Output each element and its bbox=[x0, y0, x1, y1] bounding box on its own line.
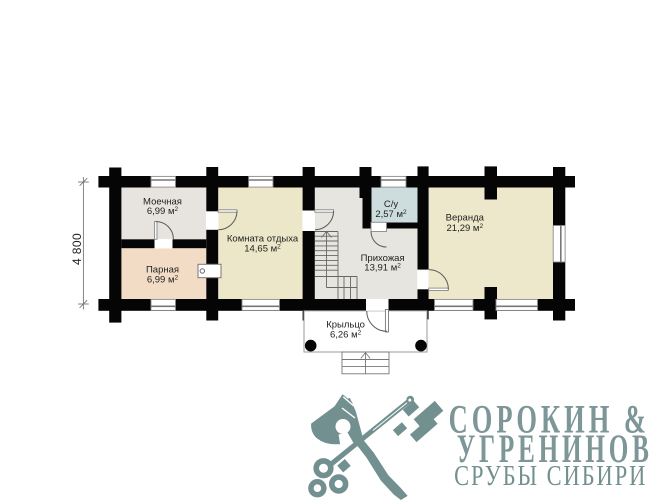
svg-text:4 800: 4 800 bbox=[70, 233, 84, 265]
svg-text:6,99 м2: 6,99 м2 bbox=[147, 205, 179, 217]
svg-text:СРУБЫ СИБИРИ: СРУБЫ СИБИРИ bbox=[454, 459, 647, 491]
svg-text:6,26 м2: 6,26 м2 bbox=[330, 329, 362, 341]
svg-text:6,99 м2: 6,99 м2 bbox=[147, 274, 179, 286]
svg-text:2,57 м2: 2,57 м2 bbox=[375, 208, 407, 220]
svg-text:13,91 м2: 13,91 м2 bbox=[364, 262, 401, 274]
svg-text:14,65 м2: 14,65 м2 bbox=[244, 243, 281, 255]
svg-text:21,29 м2: 21,29 м2 bbox=[447, 222, 484, 234]
